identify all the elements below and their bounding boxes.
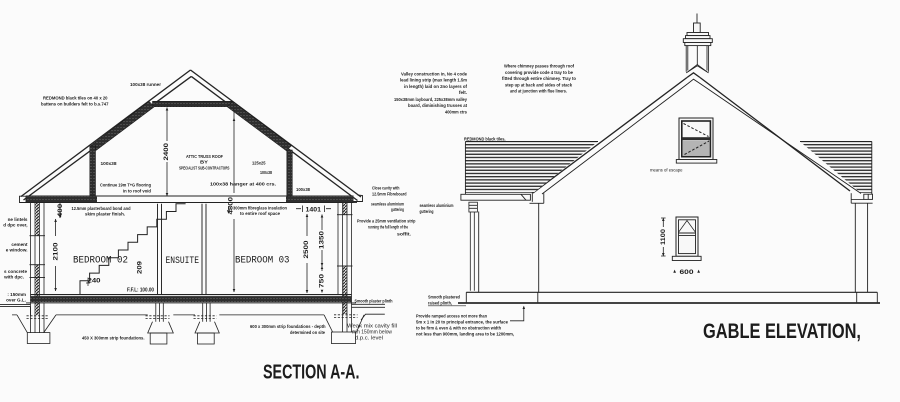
svg-text:lead lining strip (max length: lead lining strip (max length 1.5m [400, 78, 467, 83]
svg-text:with dpc.: with dpc. [3, 274, 24, 279]
svg-text:guttering: guttering [420, 209, 434, 214]
svg-text:SPECIALIST SUB-CONTRACTORS: SPECIALIST SUB-CONTRACTORS [179, 165, 230, 170]
svg-text:fitted through entire chimney.: fitted through entire chimney. Tray to [502, 76, 576, 81]
svg-text:400: 400 [58, 203, 64, 217]
svg-text:Smooth plaster plinth: Smooth plaster plinth [355, 298, 393, 303]
svg-text:209: 209 [138, 260, 144, 274]
svg-text:Continue 19m T+G flooring: Continue 19m T+G flooring [100, 183, 151, 188]
svg-text:ATTIC TRUSS ROOF: ATTIC TRUSS ROOF [186, 154, 223, 159]
svg-text:100x38 hanger at 400 crs.: 100x38 hanger at 400 crs. [210, 181, 276, 186]
svg-text:over G.L.: over G.L. [6, 298, 26, 303]
svg-text:150x38mm layboard, 225x38mm va: 150x38mm layboard, 225x38mm valley [394, 97, 467, 102]
svg-text:and at junction with flue line: and at junction with flue liners. [510, 89, 567, 94]
svg-text:soffit.: soffit. [397, 232, 411, 237]
svg-text:e window.: e window. [6, 247, 28, 252]
svg-text:240: 240 [88, 279, 102, 285]
svg-text:600: 600 [680, 270, 695, 276]
svg-text:skim plaster finish.: skim plaster finish. [85, 212, 125, 217]
svg-text:covering provide code 4 tray t: covering provide code 4 tray to be [505, 70, 573, 75]
svg-text:means of escape: means of escape [650, 167, 683, 172]
svg-text:felt.: felt. [459, 90, 467, 95]
svg-text:450 X 300mm strip foundations.: 450 X 300mm strip foundations. [82, 336, 145, 341]
svg-text:100x38: 100x38 [296, 187, 310, 192]
svg-text:d.p.c. level: d.p.c. level [355, 335, 383, 341]
svg-text:seamless aluminium: seamless aluminium [420, 203, 454, 208]
svg-text:to be firm & even & with no ob: to be firm & even & with no obstruction … [416, 326, 501, 331]
svg-text:F.F.L: 100.00: F.F.L: 100.00 [127, 288, 154, 294]
svg-text:BEDROOM 02: BEDROOM 02 [73, 256, 128, 267]
svg-text:Provide a 25mm ventilation str: Provide a 25mm ventilation strip [357, 218, 416, 223]
svg-text:100x38 runner: 100x38 runner [130, 82, 161, 87]
svg-text:100x38: 100x38 [101, 161, 117, 166]
svg-text:600 x 300mm strip foundations: 600 x 300mm strip foundations - depth [250, 324, 326, 329]
svg-text:125x25: 125x25 [252, 160, 266, 165]
svg-text:seamless aluminium: seamless aluminium [371, 202, 404, 207]
svg-text:12.5mm Fibreboard: 12.5mm Fibreboard [372, 191, 407, 196]
svg-text:board, diminishing trusses at: board, diminishing trusses at [408, 103, 467, 108]
svg-text:400mm ctrs: 400mm ctrs [445, 109, 467, 114]
svg-text:Where chimney passes through r: Where chimney passes through roof [504, 64, 574, 69]
svg-text:5m x 1 in 20 to principal entr: 5m x 1 in 20 to principal entrance, the … [416, 320, 508, 325]
svg-text:raised plinth,: raised plinth, [428, 301, 452, 306]
svg-text:2400: 2400 [164, 142, 170, 160]
svg-text:Smooth plastered: Smooth plastered [428, 295, 460, 300]
svg-text:1100: 1100 [661, 228, 667, 245]
svg-text:GABLE ELEVATION,: GABLE ELEVATION, [703, 320, 861, 343]
svg-text:in to roof void: in to roof void [123, 188, 151, 193]
svg-text:not less than 900mm, landing a: not less than 900mm, landing area to be … [416, 332, 514, 337]
svg-text:step up at back and sides of s: step up at back and sides of stack [505, 82, 572, 87]
svg-text:guttering: guttering [391, 207, 404, 212]
svg-text:BY: BY [200, 160, 208, 165]
svg-text:300mm fibreglass insulation: 300mm fibreglass insulation [233, 205, 287, 210]
svg-text:REDMOND black tiles,: REDMOND black tiles, [464, 136, 506, 141]
svg-text:12.5mm plasterboard bond and: 12.5mm plasterboard bond and [72, 206, 131, 211]
svg-text:Close cavity with: Close cavity with [372, 186, 400, 191]
svg-text:REDMOND black tiles on 40 x 20: REDMOND black tiles on 40 x 20 [43, 96, 108, 101]
svg-text:battens on builders felt to b.: battens on builders felt to b.s.747 [41, 101, 109, 106]
svg-text:: 150mm: : 150mm [7, 292, 26, 297]
svg-text:s concrete: s concrete [4, 269, 27, 274]
svg-text:1350: 1350 [320, 230, 326, 249]
svg-text:ENSUITE: ENSUITE [166, 256, 200, 267]
svg-text:2100: 2100 [54, 242, 60, 261]
svg-text:BEDROOM 03: BEDROOM 03 [235, 256, 290, 267]
svg-text:100x38: 100x38 [260, 170, 272, 175]
svg-text:Provide ramped access not more: Provide ramped access not more than [416, 314, 487, 319]
svg-text:running the full length of the: running the full length of the [368, 224, 408, 229]
svg-text:ne lintels: ne lintels [8, 217, 28, 222]
svg-text:750: 750 [320, 273, 326, 288]
svg-text:1401: 1401 [306, 207, 322, 213]
svg-text:2500: 2500 [304, 240, 310, 259]
svg-text:determined on site: determined on site [290, 330, 325, 335]
svg-text:Weak mix cavity fill: Weak mix cavity fill [347, 323, 397, 329]
svg-text:cement: cement [11, 242, 28, 247]
svg-text:Valley construction in, No 4 c: Valley construction in, No 4 code [401, 72, 467, 77]
svg-text:in length) laid on 2no layers: in length) laid on 2no layers of [404, 84, 467, 89]
svg-text:SECTION A-A.: SECTION A-A. [263, 362, 360, 384]
svg-text:d dpc over,: d dpc over, [3, 223, 27, 228]
svg-text:to entire roof space: to entire roof space [240, 211, 280, 216]
